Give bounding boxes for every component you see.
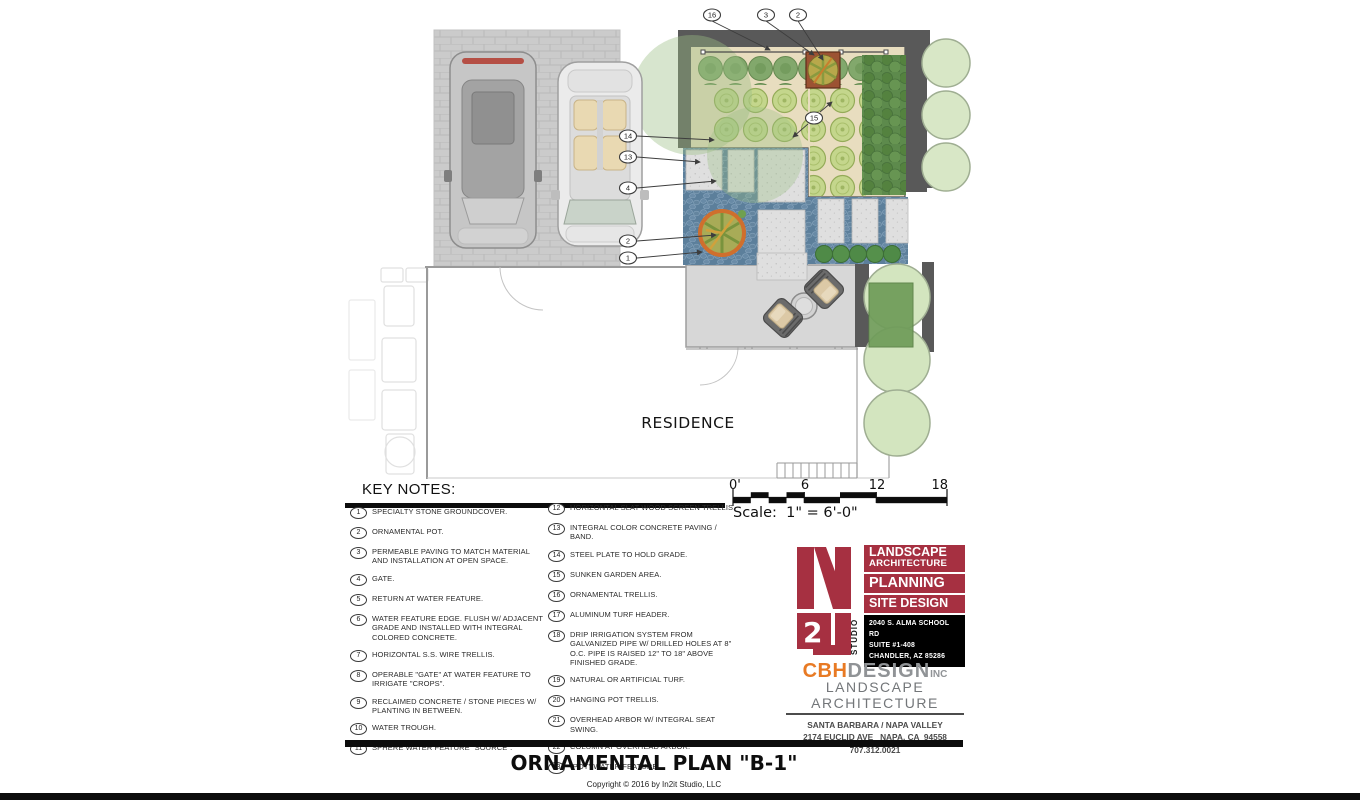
- key-note-number: 5: [350, 594, 367, 606]
- key-note-item: 16 ORNAMENTAL TRELLIS.: [548, 590, 738, 602]
- key-notes-title: KEY NOTES:: [362, 481, 456, 498]
- key-note-text: ORNAMENTAL POT.: [372, 527, 544, 539]
- tail-light: [462, 58, 524, 64]
- mirror: [534, 170, 542, 182]
- key-note-text: HANGING POT TRELLIS.: [570, 695, 738, 707]
- key-note-item: 20 HANGING POT TRELLIS.: [548, 695, 738, 707]
- in2it-studio-logo: 2 STUDIO LANDSCAPE ARCHITECTURE PLANNING…: [795, 545, 965, 667]
- svg-text:15: 15: [810, 114, 818, 123]
- callout-16: 16: [704, 9, 721, 21]
- key-note-number: 19: [548, 675, 565, 687]
- svg-text:3: 3: [764, 11, 768, 20]
- cbh-name-suffix: INC: [930, 669, 947, 680]
- in2it-monogram: 2 STUDIO: [795, 545, 861, 658]
- ornamental-pot-top: [806, 52, 840, 88]
- copyright-text: Copyright © 2016 by In2it Studio, LLC: [345, 780, 963, 789]
- door-swing-arc: [700, 347, 738, 385]
- plan-sheet: 16 3 2 15 14 13 4 2 1 RESIDENCE 0' 6 12 …: [0, 0, 1360, 800]
- callout-15: 15: [806, 112, 823, 124]
- key-note-text: ALUMINUM TURF HEADER.: [570, 610, 738, 622]
- svg-text:13: 13: [624, 153, 632, 162]
- key-note-number: 6: [350, 614, 367, 626]
- key-note-number: 7: [350, 650, 367, 662]
- callout-1: 1: [620, 252, 637, 264]
- callout-2-left: 2: [620, 235, 637, 247]
- key-note-item: 13 INTEGRAL COLOR CONCRETE PAVING / BAND…: [548, 523, 738, 542]
- key-note-item: 15 SUNKEN GARDEN AREA.: [548, 570, 738, 582]
- mirror: [444, 170, 452, 182]
- console: [597, 100, 603, 170]
- key-note-item: 21 OVERHEAD ARBOR W/ INTEGRAL SEAT SWING…: [548, 715, 738, 734]
- windshield: [462, 198, 524, 224]
- scale-bar-blocks: [733, 492, 947, 503]
- key-note-item: 17 ALUMINUM TURF HEADER.: [548, 610, 738, 622]
- scale-tick-0: 0': [729, 478, 741, 493]
- key-note-number: 3: [350, 547, 367, 559]
- key-note-number: 14: [548, 550, 565, 562]
- key-note-item: 10 WATER TROUGH.: [350, 723, 544, 735]
- key-note-text: OVERHEAD ARBOR W/ INTEGRAL SEAT SWING.: [570, 715, 738, 734]
- address-line: 2040 S. ALMA SCHOOL RD: [869, 618, 961, 640]
- address-line: SUITE #1-408: [869, 640, 961, 651]
- sprig: [738, 210, 746, 218]
- key-note-text: WATER TROUGH.: [372, 723, 544, 735]
- key-note-item: 8 OPERABLE "GATE" AT WATER FEATURE TO IR…: [350, 670, 544, 689]
- residence-label: RESIDENCE: [641, 414, 734, 432]
- key-note-number: 17: [548, 610, 565, 622]
- shrub-grid: [810, 86, 866, 196]
- key-note-text: SPECIALTY STONE GROUNDCOVER.: [372, 507, 544, 519]
- key-note-number: 8: [350, 670, 367, 682]
- svg-text:1: 1: [626, 254, 630, 263]
- key-note-text: HORIZONTAL SLAT WOOD SCREEN TRELLIS.: [570, 503, 738, 515]
- key-note-item: 3 PERMEABLE PAVING TO MATCH MATERIAL AND…: [350, 547, 544, 566]
- svg-text:2: 2: [796, 11, 800, 20]
- monogram-number: 2: [803, 616, 822, 649]
- key-note-number: 9: [350, 697, 367, 709]
- shrub-row: [816, 246, 901, 263]
- cbh-tagline: LANDSCAPE ARCHITECTURE: [782, 679, 968, 711]
- key-note-item: 5 RETURN AT WATER FEATURE.: [350, 594, 544, 606]
- key-note-text: STEEL PLATE TO HOLD GRADE.: [570, 550, 738, 562]
- dense-hedge: [862, 55, 906, 195]
- service-line: ARCHITECTURE: [869, 559, 961, 570]
- sunroof: [472, 92, 514, 144]
- cbh-divider: [786, 713, 964, 715]
- key-note-text: HORIZONTAL S.S. WIRE TRELLIS.: [372, 650, 544, 662]
- hedge-block: [869, 283, 913, 347]
- hood: [458, 228, 528, 244]
- suv-car: [444, 52, 542, 248]
- key-note-text: NATURAL OR ARTIFICIAL TURF.: [570, 675, 738, 687]
- key-note-number: 1: [350, 507, 367, 519]
- svg-text:4: 4: [626, 184, 630, 193]
- bottom-border-bar: [0, 793, 1360, 800]
- callout-13: 13: [620, 151, 637, 163]
- key-note-item: 14 STEEL PLATE TO HOLD GRADE.: [548, 550, 738, 562]
- svg-text:14: 14: [624, 132, 632, 141]
- mirror: [640, 190, 649, 200]
- key-note-item: 1 SPECIALTY STONE GROUNDCOVER.: [350, 507, 544, 519]
- key-note-text: INTEGRAL COLOR CONCRETE PAVING / BAND.: [570, 523, 738, 542]
- key-note-item: 2 ORNAMENTAL POT.: [350, 527, 544, 539]
- studio-vertical-text: STUDIO: [850, 619, 859, 655]
- key-note-number: 13: [548, 523, 565, 535]
- key-note-number: 20: [548, 695, 565, 707]
- key-note-item: 19 NATURAL OR ARTIFICIAL TURF.: [548, 675, 738, 687]
- service-line: SITE DESIGN: [864, 595, 965, 613]
- key-note-text: RECLAIMED CONCRETE / STONE PIECES W/ PLA…: [372, 697, 544, 716]
- mirror: [551, 190, 560, 200]
- in2it-services-box: LANDSCAPE ARCHITECTURE: [864, 545, 965, 572]
- scale-tick-12: 12: [869, 478, 886, 493]
- callout-4: 4: [620, 182, 637, 194]
- key-note-number: 10: [350, 723, 367, 735]
- key-note-number: 2: [350, 527, 367, 539]
- scale-tick-18: 18: [931, 478, 948, 493]
- key-note-text: PERMEABLE PAVING TO MATCH MATERIAL AND I…: [372, 547, 544, 566]
- ornamental-pot: [700, 210, 746, 255]
- address-line: SANTA BARBARA / NAPA VALLEY: [782, 719, 968, 731]
- svg-text:2: 2: [626, 237, 630, 246]
- key-note-number: 12: [548, 503, 565, 515]
- door-swing-arc: [500, 267, 543, 310]
- callout-14: 14: [620, 130, 637, 142]
- key-note-number: 15: [548, 570, 565, 582]
- svg-text:16: 16: [708, 11, 716, 20]
- scale-label: Scale: 1" = 6'-0": [733, 505, 858, 521]
- key-note-text: SUNKEN GARDEN AREA.: [570, 570, 738, 582]
- key-note-item: 6 WATER FEATURE EDGE. FLUSH W/ ADJACENT …: [350, 614, 544, 642]
- key-note-number: 21: [548, 715, 565, 727]
- key-note-item: 12 HORIZONTAL SLAT WOOD SCREEN TRELLIS.: [548, 503, 738, 515]
- faint-floorplan-furniture: [349, 268, 428, 474]
- key-note-text: DRIP IRRIGATION SYSTEM FROM GALVANIZED P…: [570, 630, 738, 668]
- key-note-number: 18: [548, 630, 565, 642]
- key-notes-left-column: 1 SPECIALTY STONE GROUNDCOVER. 2 ORNAMEN…: [350, 507, 544, 763]
- key-note-text: RETURN AT WATER FEATURE.: [372, 594, 544, 606]
- key-note-text: WATER FEATURE EDGE. FLUSH W/ ADJACENT GR…: [372, 614, 544, 642]
- scale-tick-6: 6: [801, 478, 809, 493]
- title-divider-bar: [345, 740, 963, 747]
- service-line: PLANNING: [864, 574, 965, 594]
- site-plan-drawing: 16 3 2 15 14 13 4 2 1 RESIDENCE: [330, 0, 990, 480]
- callout-3: 3: [758, 9, 775, 21]
- in2it-address-box: 2040 S. ALMA SCHOOL RD SUITE #1-408 CHAN…: [864, 615, 965, 666]
- sheet-title: ORNAMENTAL PLAN "B-1": [345, 751, 963, 775]
- windshield: [564, 200, 636, 224]
- tree-canopy: [707, 107, 803, 203]
- key-note-text: ORNAMENTAL TRELLIS.: [570, 590, 738, 602]
- key-note-item: 18 DRIP IRRIGATION SYSTEM FROM GALVANIZE…: [548, 630, 738, 668]
- key-note-number: 4: [350, 574, 367, 586]
- trunk: [568, 70, 632, 92]
- key-note-number: 16: [548, 590, 565, 602]
- key-note-text: OPERABLE "GATE" AT WATER FEATURE TO IRRI…: [372, 670, 544, 689]
- key-note-item: 4 GATE.: [350, 574, 544, 586]
- key-note-item: 9 RECLAIMED CONCRETE / STONE PIECES W/ P…: [350, 697, 544, 716]
- key-note-text: GATE.: [372, 574, 544, 586]
- key-note-item: 7 HORIZONTAL S.S. WIRE TRELLIS.: [350, 650, 544, 662]
- callout-2-top: 2: [790, 9, 807, 21]
